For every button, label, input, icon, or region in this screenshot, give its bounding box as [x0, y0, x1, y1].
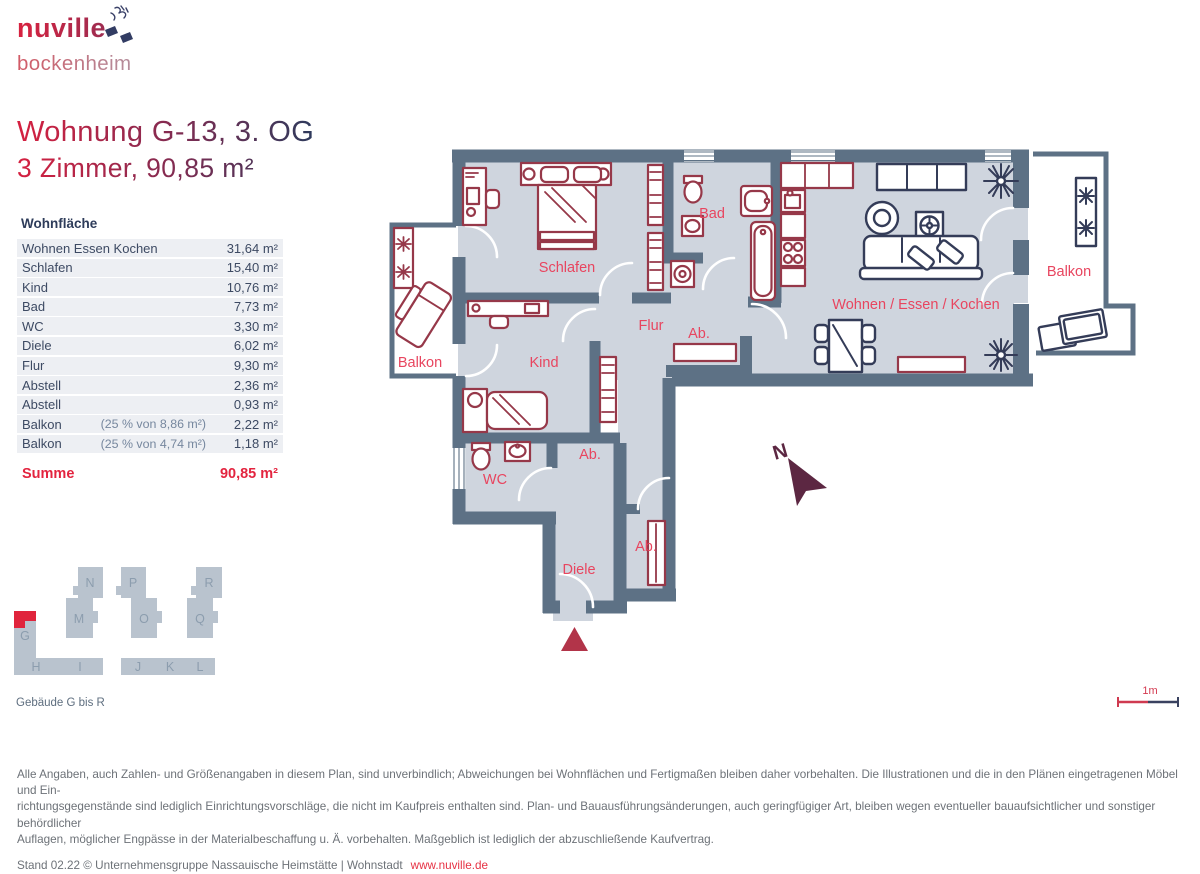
- page-title: Wohnung G-13, 3. OG 3 Zimmer, 90,85 m²: [17, 114, 314, 185]
- table-row: Wohnen Essen Kochen31,64 m²: [17, 239, 283, 257]
- building-label-l: L: [197, 660, 204, 674]
- area-table-header: Wohnfläche: [17, 216, 283, 231]
- wc-toilet: [472, 443, 490, 470]
- table-row: Abstell2,36 m²: [17, 376, 283, 394]
- building-label-q: Q: [195, 612, 205, 626]
- room-label-abstell: Ab.: [688, 326, 710, 342]
- table-row: Kind10,76 m²: [17, 278, 283, 296]
- room-label-abstell: Ab.: [579, 447, 601, 463]
- building-blocks: [14, 567, 222, 675]
- wohnen-sideboard: [898, 357, 965, 372]
- logo-crest-icon: [101, 5, 147, 49]
- table-row: Balkon(25 % von 4,74 m²)1,18 m²: [17, 435, 283, 453]
- table-row: Bad7,73 m²: [17, 298, 283, 316]
- disclaimer-line: Alle Angaben, auch Zahlen- und Größenang…: [17, 767, 1187, 799]
- north-label: N: [770, 440, 790, 465]
- table-row: Abstell0,93 m²: [17, 396, 283, 414]
- kind-bed: [463, 389, 547, 432]
- building-key: G H I J K L M N O P Q R Gebäude G bis R: [8, 556, 258, 714]
- nuville-link[interactable]: www.nuville.de: [411, 859, 488, 872]
- title-line1: Wohnung G-13, 3. OG: [17, 114, 314, 151]
- area-table: Wohnfläche Wohnen Essen Kochen31,64 m² S…: [17, 216, 283, 482]
- building-label-r: R: [204, 576, 213, 590]
- room-label-balkon-links: Balkon: [398, 355, 442, 371]
- disclaimer-line: Auflagen, möglicher Engpässe in der Mate…: [17, 832, 1187, 848]
- logo: nuville bockenheim: [17, 13, 217, 99]
- building-label-h: H: [31, 660, 40, 674]
- room-label-bad: Bad: [699, 206, 725, 222]
- right-balcony-loungers: [1037, 309, 1107, 351]
- room-label-kind: Kind: [529, 355, 558, 371]
- building-label-g: G: [20, 629, 30, 643]
- building-label-k: K: [166, 660, 175, 674]
- room-label-abstell: Ab.: [635, 539, 657, 555]
- room-label-wc: WC: [483, 472, 507, 488]
- plant-top: [984, 164, 1018, 198]
- logo-sub: bockenheim: [17, 52, 217, 76]
- scale-label: 1m: [1142, 685, 1157, 697]
- bad-washbasin: [741, 186, 772, 216]
- table-row: Diele6,02 m²: [17, 337, 283, 355]
- disclaimer-line: richtungsgegenstände sind lediglich Einr…: [17, 799, 1187, 831]
- armchair: [866, 202, 898, 234]
- corridor-wardrobe: [600, 357, 616, 422]
- stand-line: Stand 02.22 © Unternehmensgruppe Nassaui…: [17, 858, 1187, 874]
- living-shelf: [877, 164, 966, 190]
- room-label-schlafen: Schlafen: [539, 260, 595, 276]
- room-label-wohnen: Wohnen / Essen / Kochen: [832, 297, 999, 313]
- building-label-o: O: [139, 612, 149, 626]
- building-key-caption: Gebäude G bis R: [16, 697, 105, 709]
- entrance-marker-icon: [561, 627, 588, 651]
- room-label-diele: Diele: [562, 562, 595, 578]
- stand-text: Stand 02.22 © Unternehmensgruppe Nassaui…: [17, 859, 403, 872]
- table-row: Flur9,30 m²: [17, 357, 283, 375]
- building-label-n: N: [85, 576, 94, 590]
- building-label-p: P: [129, 576, 137, 590]
- dining-table: [815, 320, 875, 372]
- washing-machine: [671, 261, 694, 287]
- table-row: Balkon(25 % von 8,86 m²)2,22 m²: [17, 415, 283, 433]
- bathtub: [751, 222, 775, 300]
- wc-sink: [505, 442, 530, 461]
- building-label-m: M: [74, 612, 84, 626]
- plant-bottom: [985, 339, 1017, 371]
- sofa: [860, 236, 982, 279]
- title-line2: 3 Zimmer, 90,85 m²: [17, 151, 314, 185]
- scale-bar: 1m: [1118, 685, 1178, 707]
- abstell-sideboard: [674, 344, 736, 361]
- left-balcony-planter: [394, 228, 413, 288]
- room-label-balkon-rechts: Balkon: [1047, 264, 1091, 280]
- floorplan: Schlafen Bad Flur Ab. Kind Balkon WC Ab.…: [380, 125, 1180, 725]
- table-row: WC3,30 m²: [17, 317, 283, 335]
- footer: Alle Angaben, auch Zahlen- und Größenang…: [17, 767, 1187, 874]
- building-label-i: I: [78, 660, 81, 674]
- building-label-j: J: [135, 660, 141, 674]
- bad-toilet: [684, 176, 702, 203]
- table-row: Schlafen15,40 m²: [17, 259, 283, 277]
- north-arrow: N: [770, 440, 827, 506]
- area-total-row: Summe90,85 m²: [17, 466, 283, 482]
- room-label-flur: Flur: [639, 318, 664, 334]
- right-balcony-planter: [1076, 178, 1096, 246]
